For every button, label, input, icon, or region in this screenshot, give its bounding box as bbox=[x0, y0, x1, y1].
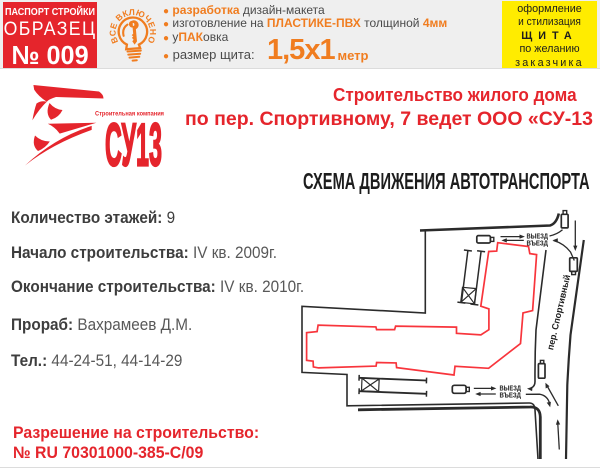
svg-text:ВЪЕЗД: ВЪЕЗД bbox=[527, 238, 549, 247]
svg-text:пер. Спортивный: пер. Спортивный bbox=[545, 273, 572, 351]
svg-text:ВЪЕЗД: ВЪЕЗД bbox=[500, 391, 522, 400]
